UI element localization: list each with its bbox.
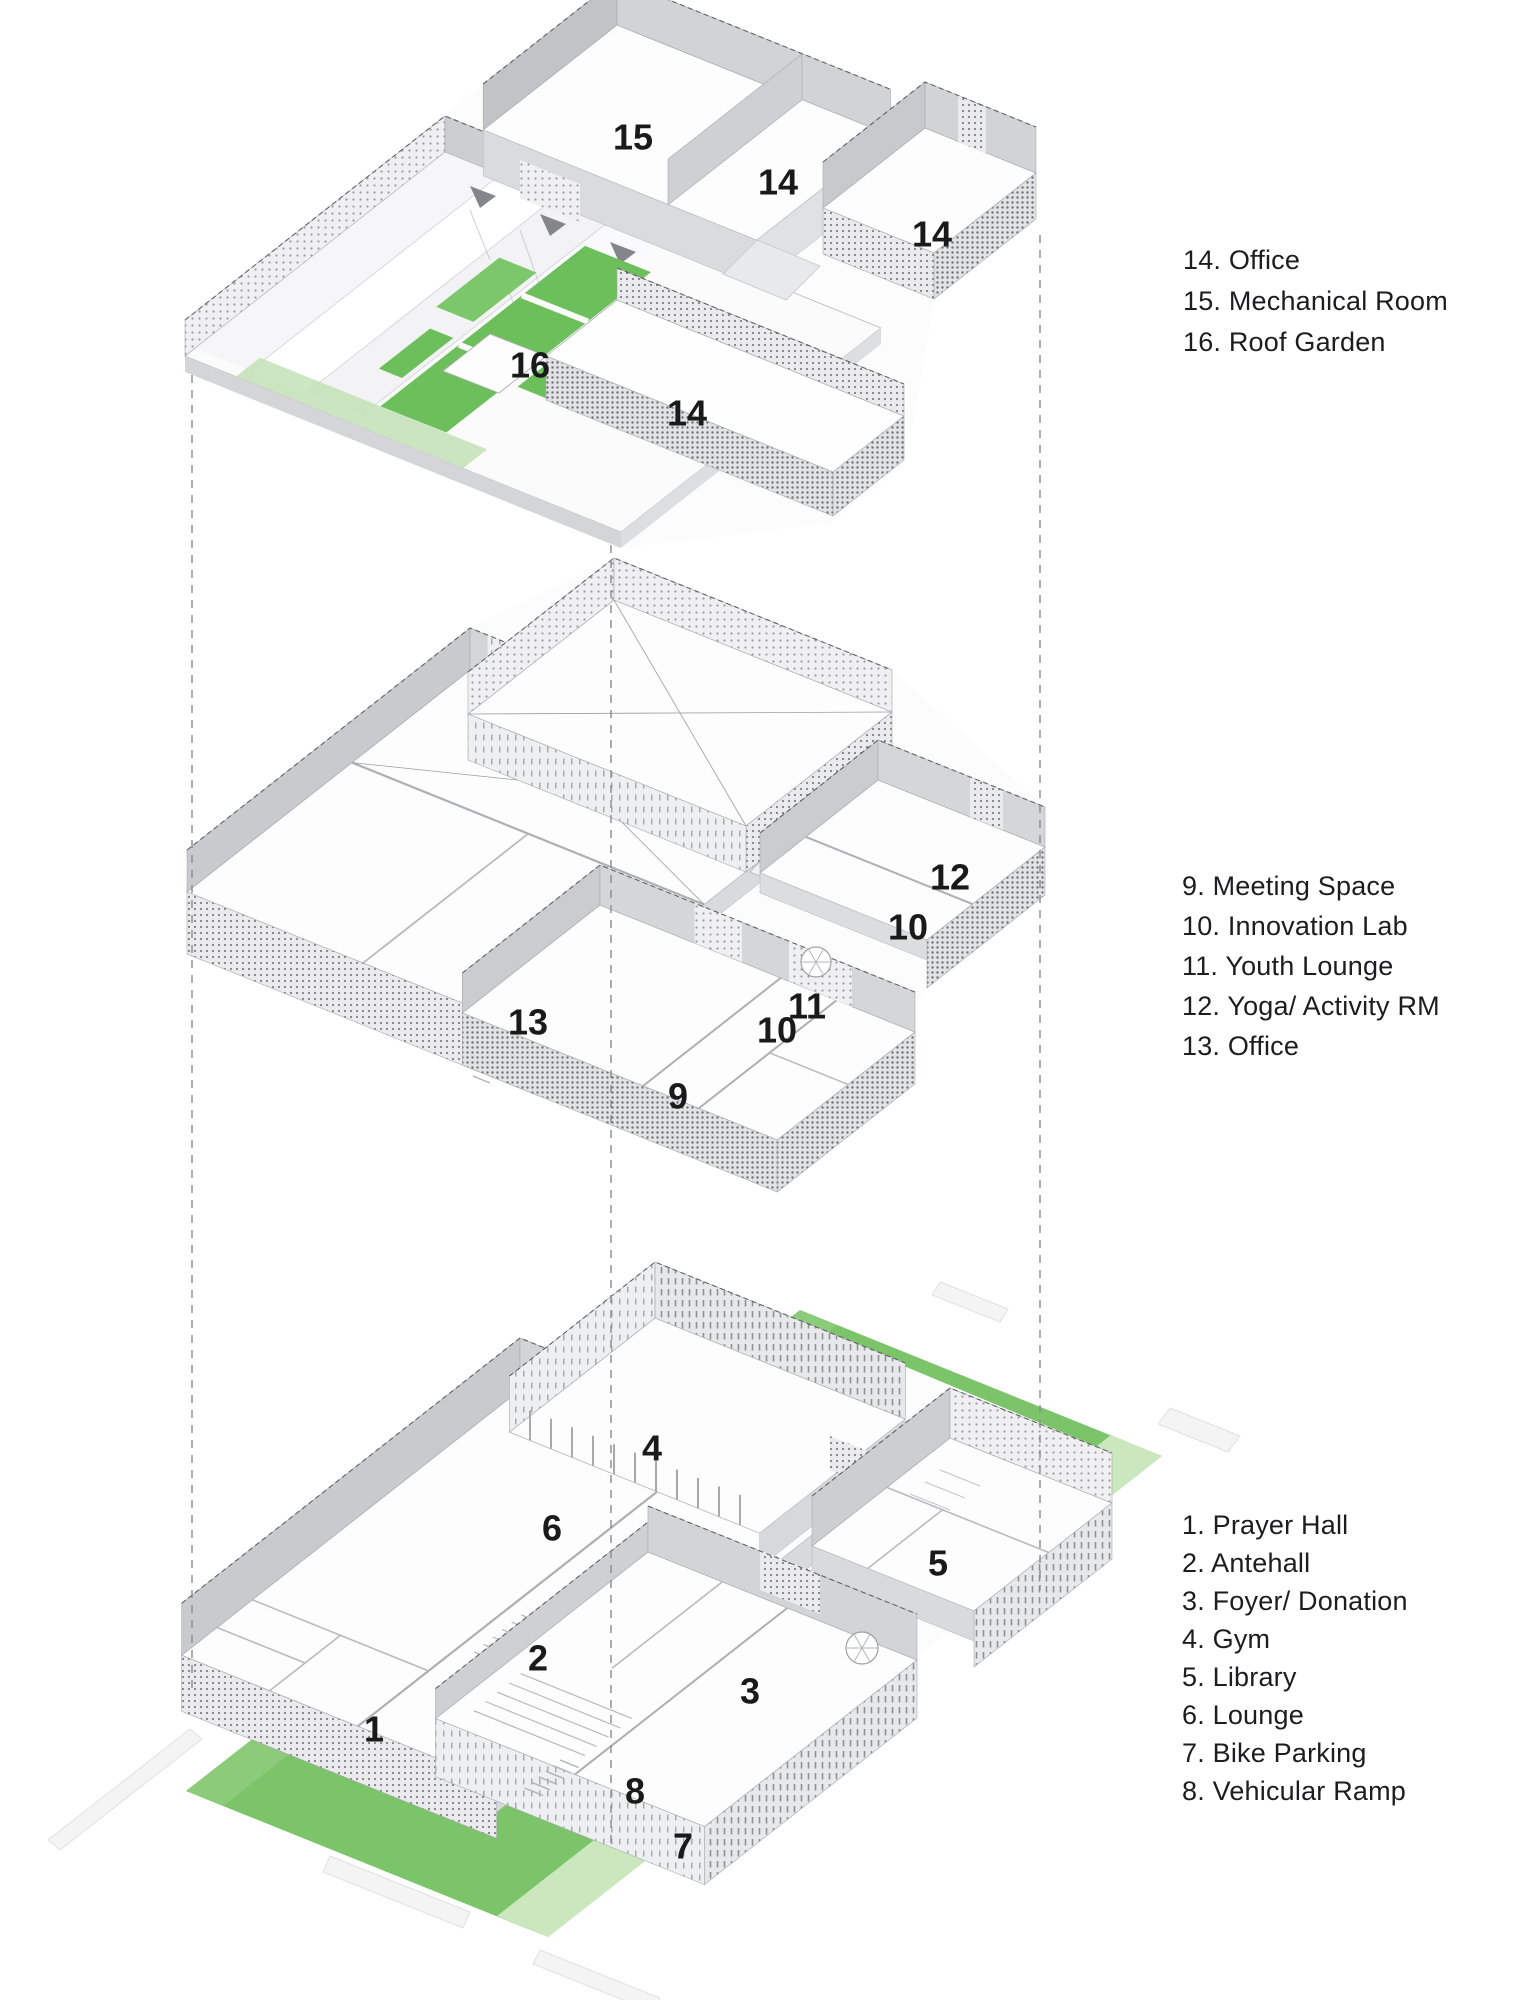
level-second (187, 558, 1045, 1192)
legend-item: 5. Library (1182, 1658, 1408, 1696)
legend-item: 6. Lounge (1182, 1696, 1408, 1734)
room-label-7: 7 (673, 1826, 693, 1867)
legend-roof-level: 14. Office 15. Mechanical Room 16. Roof … (1183, 240, 1448, 363)
room-label-3: 3 (740, 1671, 760, 1712)
room-label-1: 1 (364, 1709, 384, 1750)
room-label-14a: 14 (758, 162, 798, 203)
room-label-4: 4 (642, 1428, 662, 1469)
room-label-8: 8 (625, 1771, 645, 1812)
room-label-10b: 10 (757, 1010, 797, 1051)
legend-item: 2. Antehall (1182, 1544, 1408, 1582)
legend-item: 12. Yoga/ Activity RM (1182, 986, 1440, 1026)
room-label-2: 2 (528, 1638, 548, 1679)
legend-item: 16. Roof Garden (1183, 322, 1448, 363)
legend-item: 8. Vehicular Ramp (1182, 1772, 1408, 1810)
legend-item: 10. Innovation Lab (1182, 906, 1440, 946)
second-spiral-stair (801, 947, 831, 977)
room-label-14c: 14 (667, 393, 707, 434)
room-label-13: 13 (508, 1002, 548, 1043)
legend-item: 13. Office (1182, 1026, 1440, 1066)
legend-item: 3. Foyer/ Donation (1182, 1582, 1408, 1620)
level-ground (48, 1262, 1240, 2000)
ground-spiral-stair (846, 1632, 878, 1664)
legend-second-level: 9. Meeting Space 10. Innovation Lab 11. … (1182, 866, 1440, 1066)
legend-item: 9. Meeting Space (1182, 866, 1440, 906)
legend-ground-level: 1. Prayer Hall 2. Antehall 3. Foyer/ Don… (1182, 1506, 1408, 1810)
room-label-12: 12 (930, 857, 970, 898)
room-label-16: 16 (510, 345, 550, 386)
legend-item: 7. Bike Parking (1182, 1734, 1408, 1772)
legend-item: 1. Prayer Hall (1182, 1506, 1408, 1544)
room-label-10a: 10 (888, 907, 928, 948)
legend-item: 11. Youth Lounge (1182, 946, 1440, 986)
legend-item: 4. Gym (1182, 1620, 1408, 1658)
room-label-9: 9 (668, 1076, 688, 1117)
level-roof (185, 0, 1036, 548)
room-label-15: 15 (613, 117, 653, 158)
room-label-6: 6 (542, 1508, 562, 1549)
legend-item: 15. Mechanical Room (1183, 281, 1448, 322)
room-label-14b: 14 (912, 214, 952, 255)
legend-item: 14. Office (1183, 240, 1448, 281)
room-label-5: 5 (928, 1543, 948, 1584)
